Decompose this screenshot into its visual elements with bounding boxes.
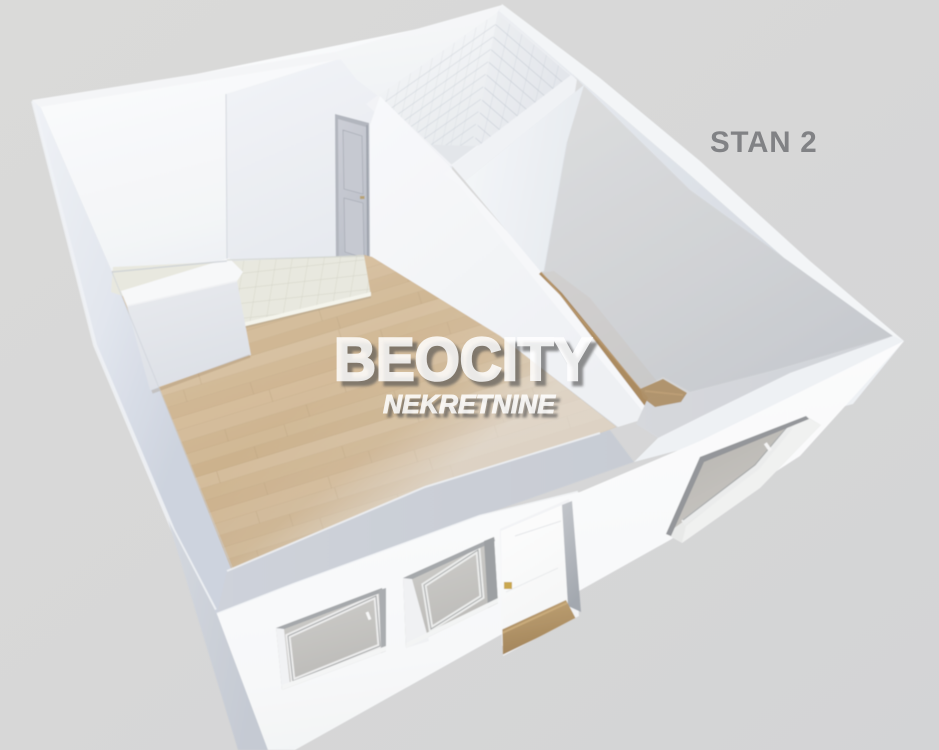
svg-text:STAN 2: STAN 2 bbox=[710, 126, 818, 159]
svg-text:NEKRETNINE: NEKRETNINE bbox=[383, 389, 556, 419]
svg-text:BEOCITY: BEOCITY bbox=[334, 326, 592, 393]
